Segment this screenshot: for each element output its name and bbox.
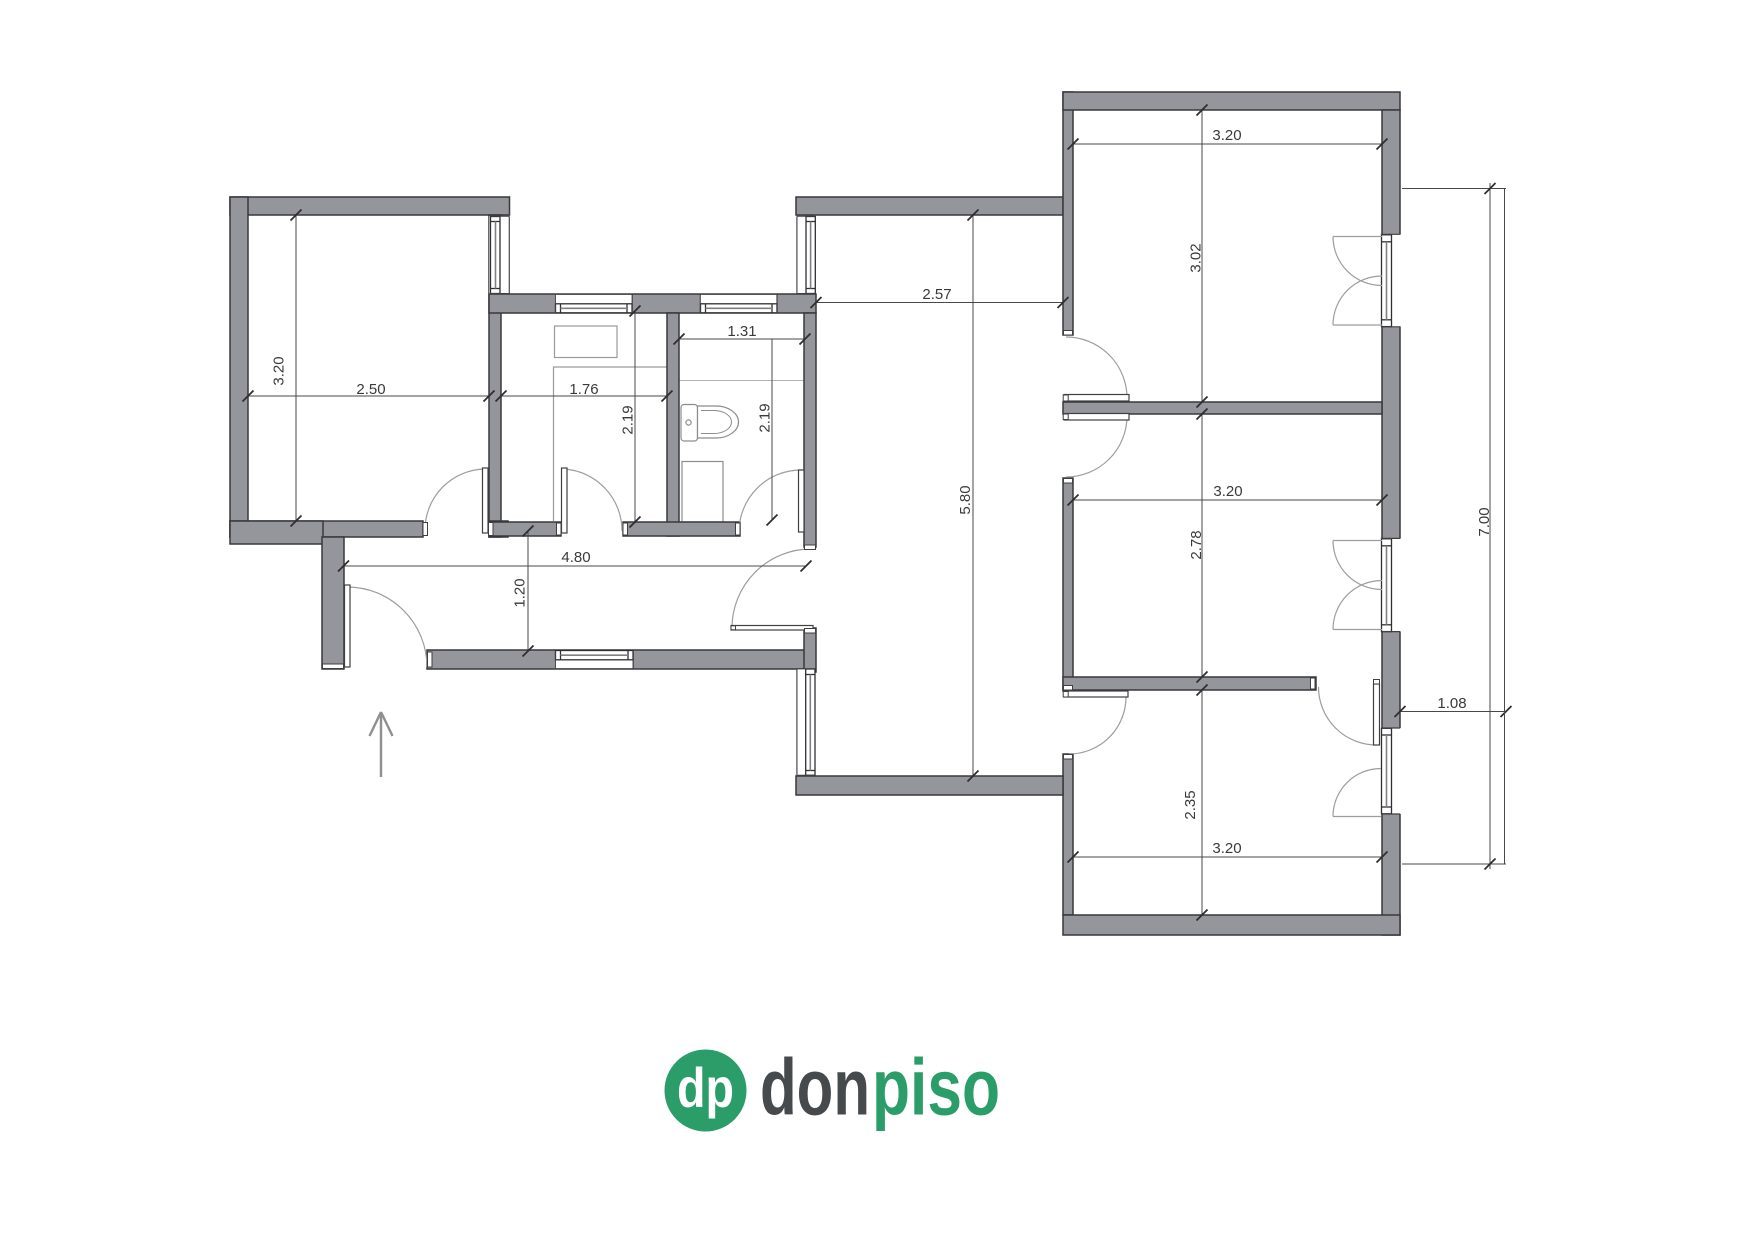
svg-text:7.00: 7.00 bbox=[1476, 507, 1493, 536]
svg-text:3.20: 3.20 bbox=[1212, 840, 1241, 857]
svg-text:1.76: 1.76 bbox=[569, 381, 598, 398]
svg-text:3.20: 3.20 bbox=[1213, 483, 1242, 500]
svg-text:2.57: 2.57 bbox=[922, 286, 951, 303]
svg-text:2.50: 2.50 bbox=[356, 381, 385, 398]
svg-text:1.20: 1.20 bbox=[511, 578, 528, 607]
svg-text:piso: piso bbox=[872, 1043, 1000, 1132]
svg-text:4.80: 4.80 bbox=[561, 549, 590, 566]
svg-text:2.19: 2.19 bbox=[619, 405, 636, 434]
svg-text:2.35: 2.35 bbox=[1182, 790, 1199, 819]
svg-text:3.02: 3.02 bbox=[1187, 243, 1204, 272]
svg-text:3.20: 3.20 bbox=[1212, 127, 1241, 144]
svg-text:1.08: 1.08 bbox=[1437, 695, 1466, 712]
svg-text:3.20: 3.20 bbox=[270, 356, 287, 385]
svg-text:don: don bbox=[760, 1043, 870, 1132]
svg-text:2.19: 2.19 bbox=[756, 403, 773, 432]
svg-text:5.80: 5.80 bbox=[957, 485, 974, 514]
svg-text:2.78: 2.78 bbox=[1188, 530, 1205, 559]
svg-text:dp: dp bbox=[677, 1056, 734, 1119]
svg-text:1.31: 1.31 bbox=[727, 323, 756, 340]
